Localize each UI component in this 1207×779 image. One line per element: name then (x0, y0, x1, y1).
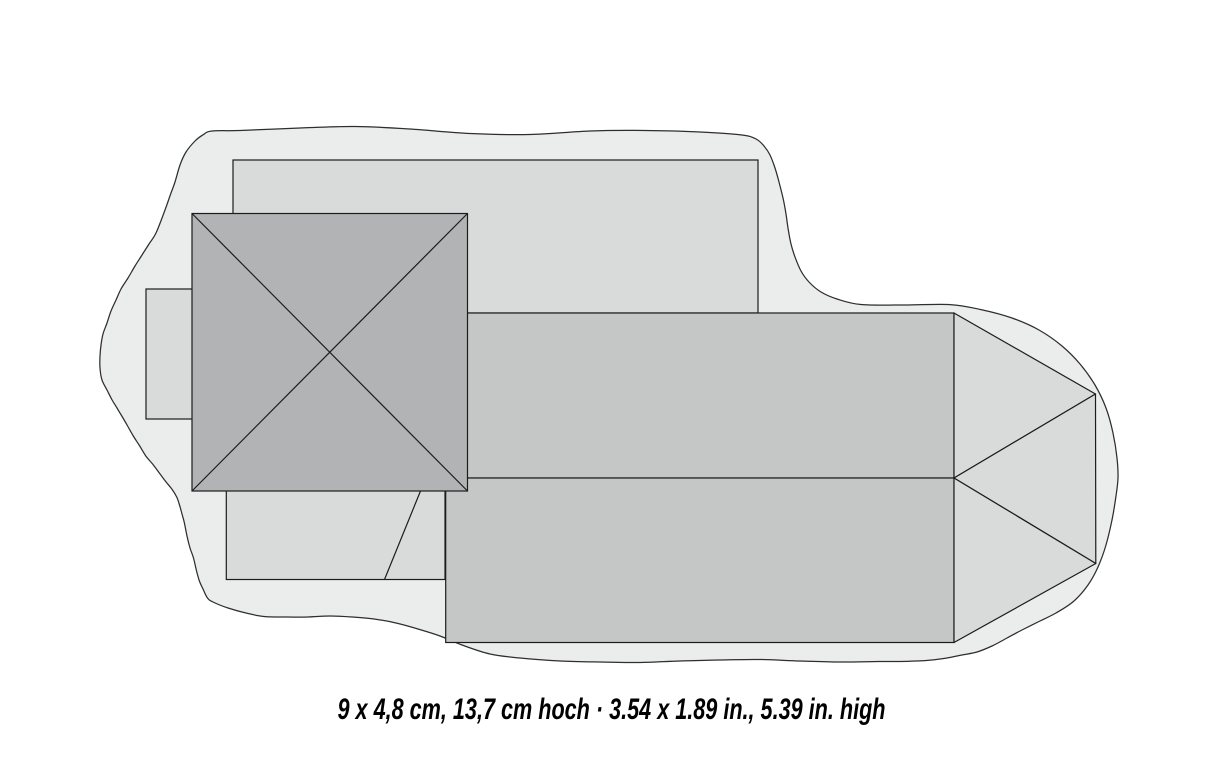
svg-text:9 x 4,8 cm, 13,7 cm hoch · 3.5: 9 x 4,8 cm, 13,7 cm hoch · 3.54 x 1.89 i… (338, 693, 886, 726)
